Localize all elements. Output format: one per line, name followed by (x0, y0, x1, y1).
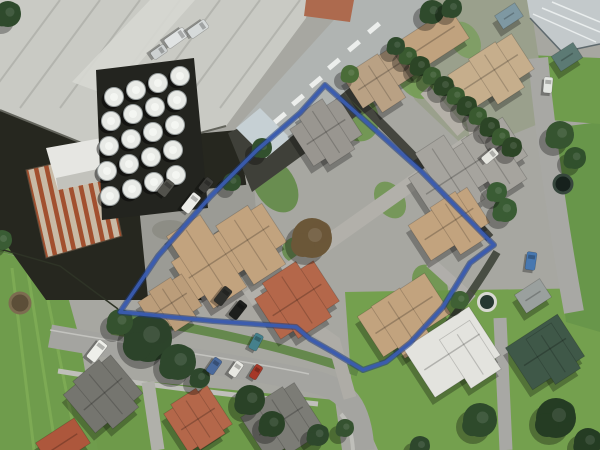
tank-cap (150, 178, 158, 186)
tree-highlight (117, 316, 126, 325)
aerial-photo-canvas (0, 0, 600, 450)
pool-circle (479, 294, 496, 311)
tank-cap (107, 117, 115, 125)
driveway-southeast (500, 318, 506, 450)
tree-highlight (0, 235, 7, 242)
tree-highlight (488, 122, 495, 129)
tree-highlight (5, 8, 14, 17)
tank-cap (125, 160, 133, 168)
tree-highlight (458, 296, 464, 302)
pool-circle (554, 175, 572, 193)
aerial-map-view (0, 0, 600, 450)
tank-cap (128, 185, 136, 193)
tree-highlight (348, 70, 354, 76)
tank-cap (132, 86, 140, 94)
tree-highlight (495, 187, 502, 194)
tree-highlight (430, 72, 436, 78)
tree-highlight (269, 418, 278, 427)
tree-highlight (316, 430, 324, 438)
tree-highlight (557, 128, 567, 138)
well-field (10, 293, 30, 313)
tree-highlight (174, 353, 187, 366)
tree-highlight (454, 92, 460, 98)
tank-cap (154, 79, 162, 87)
tank-cap (110, 93, 118, 101)
tank-cap (169, 146, 177, 154)
tank-cap (103, 167, 111, 175)
tree-highlight (573, 153, 581, 161)
tank-cap (105, 142, 113, 150)
vehicle-windshield (545, 80, 551, 85)
tree-highlight (552, 408, 566, 422)
tank-cap (149, 128, 157, 136)
tree-highlight (406, 52, 412, 58)
tree-highlight (247, 393, 258, 404)
spa-east (554, 175, 572, 193)
tree-highlight (477, 412, 489, 424)
tree-highlight (503, 204, 511, 212)
tree-highlight (198, 373, 205, 380)
tank-cap (171, 121, 179, 129)
tree-highlight (418, 61, 425, 68)
tank-cap (172, 171, 180, 179)
tree-highlight (450, 3, 457, 10)
tree-highlight (143, 326, 160, 343)
tree-highlight (308, 228, 322, 242)
tree-highlight (394, 42, 400, 48)
tank-cap (127, 135, 135, 143)
tree-highlight (442, 81, 449, 88)
pool-circle (10, 293, 30, 313)
tank-cap (147, 153, 155, 161)
tree-highlight (418, 441, 425, 448)
tree-highlight (465, 101, 472, 108)
vehicle-body (525, 251, 537, 270)
tree-highlight (343, 424, 349, 430)
tank-cap (173, 96, 181, 104)
tree-highlight (585, 435, 595, 445)
tree-highlight (510, 142, 517, 149)
tank-cap (106, 192, 114, 200)
tree-highlight (476, 112, 482, 118)
tank-cap (176, 72, 184, 80)
tank-cap (129, 110, 137, 118)
tree-highlight (499, 133, 505, 139)
vehicle-body (543, 77, 553, 94)
tank-cap (151, 103, 159, 111)
round-pool-east (479, 294, 496, 311)
